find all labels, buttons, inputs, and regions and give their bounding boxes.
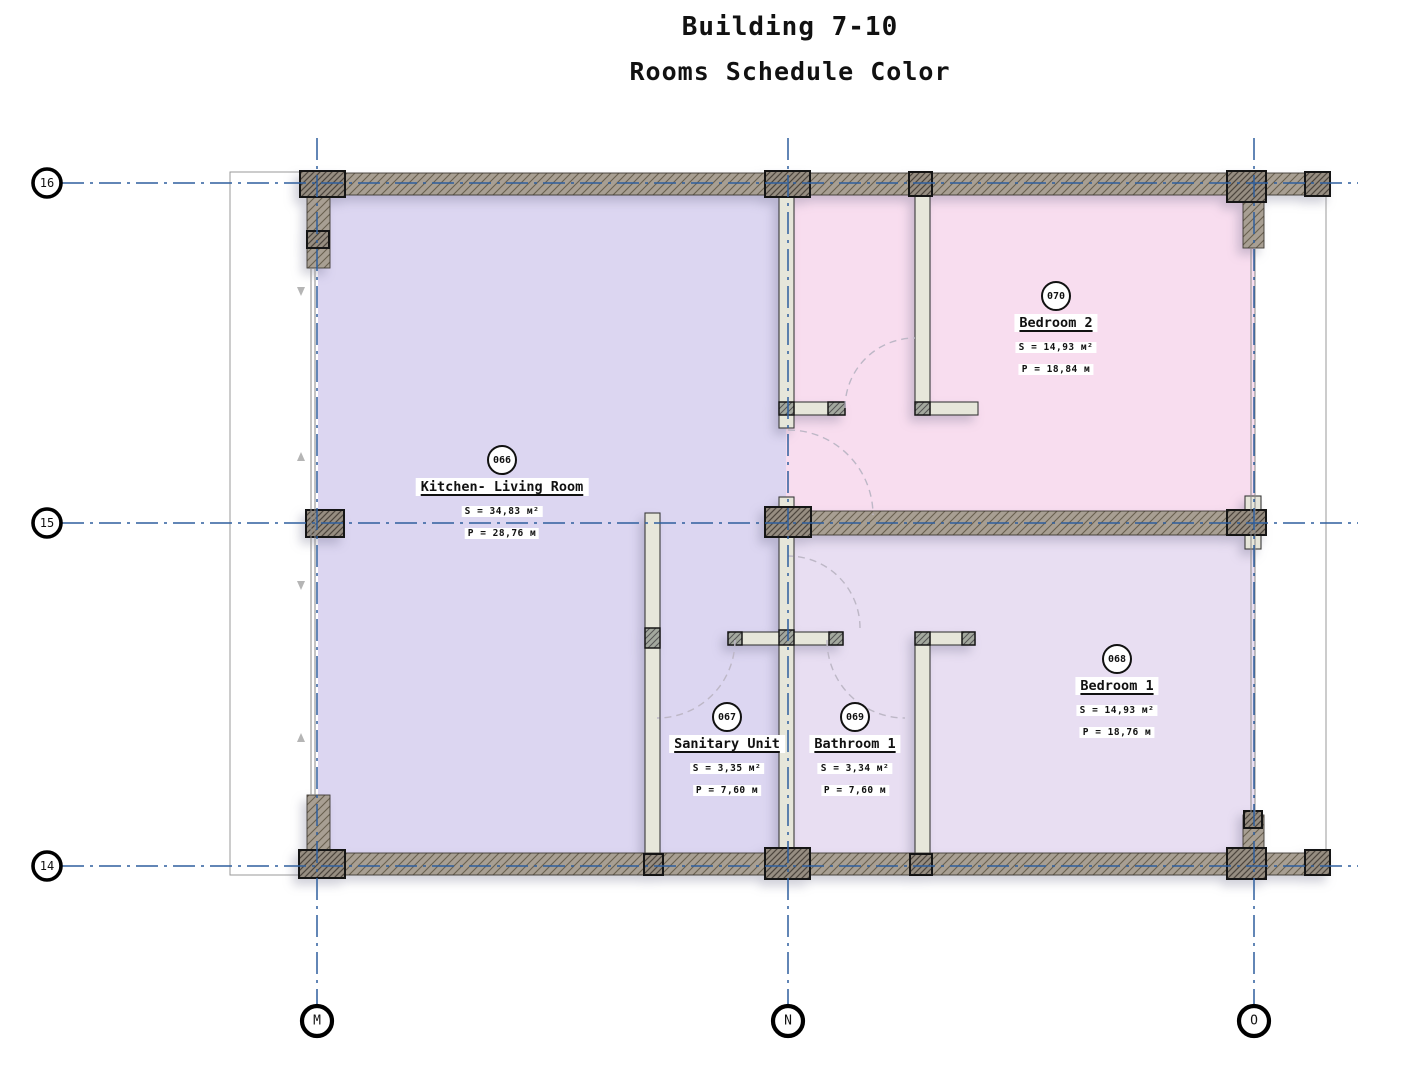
wall-bottom bbox=[307, 853, 1330, 875]
column bbox=[1244, 811, 1262, 828]
grid-bubble-M-label: M bbox=[313, 1014, 321, 1029]
column bbox=[300, 171, 345, 197]
partition-sanitary-bathroom bbox=[779, 535, 794, 855]
grid-bubble-16-label: 16 bbox=[40, 176, 54, 190]
grid-bubble-16: 16 bbox=[33, 169, 61, 197]
grid-bubble-14-label: 14 bbox=[40, 859, 54, 873]
window-arrow-up bbox=[297, 452, 305, 461]
room-tag-066: 066 bbox=[487, 445, 517, 475]
grid-bubble-14: 14 bbox=[33, 852, 61, 880]
room-name: Bathroom 1 bbox=[809, 735, 900, 753]
room-label-bedroom1: Bedroom 1 S = 14,93 м² P = 18,76 м bbox=[1075, 675, 1158, 739]
block bbox=[915, 402, 930, 415]
room-name: Kitchen- Living Room bbox=[416, 478, 589, 496]
block bbox=[915, 632, 930, 645]
block bbox=[829, 632, 843, 645]
floor-plan-canvas: 16 15 14 M N O bbox=[0, 0, 1426, 1073]
wall-left-lower bbox=[307, 795, 330, 853]
block bbox=[779, 630, 794, 645]
partition-kitchen-corridor bbox=[645, 513, 660, 855]
grid-bubble-O-label: O bbox=[1250, 1014, 1258, 1029]
column bbox=[299, 850, 345, 878]
room-perimeter: P = 18,84 м bbox=[1019, 364, 1093, 375]
window-arrows bbox=[297, 287, 305, 742]
room-label-kitchen-living: Kitchen- Living Room S = 34,83 м² P = 28… bbox=[416, 476, 589, 540]
room-area: S = 34,83 м² bbox=[462, 506, 543, 517]
room-perimeter: P = 7,60 м bbox=[821, 785, 889, 796]
block bbox=[645, 628, 660, 648]
partition-kitchen-bedroom2 bbox=[779, 196, 794, 428]
room-perimeter: P = 18,76 м bbox=[1080, 727, 1154, 738]
drawing-title: Building 7-10 bbox=[682, 12, 899, 42]
column bbox=[644, 854, 663, 875]
room-perimeter: P = 7,60 м bbox=[693, 785, 761, 796]
block bbox=[779, 402, 794, 415]
column bbox=[1305, 850, 1330, 875]
room-area: S = 14,93 м² bbox=[1016, 342, 1097, 353]
grid-bubble-O: O bbox=[1239, 1006, 1269, 1036]
room-label-bedroom2: Bedroom 2 S = 14,93 м² P = 18,84 м bbox=[1014, 312, 1097, 376]
partition-bedroom2-inner bbox=[915, 196, 930, 415]
room-tag-067: 067 bbox=[712, 702, 742, 732]
column bbox=[909, 172, 932, 196]
column bbox=[1305, 172, 1330, 196]
window-arrow-down bbox=[297, 287, 305, 296]
grid-bubble-N: N bbox=[773, 1006, 803, 1036]
partition-bedroom2-return bbox=[930, 402, 978, 415]
room-perimeter: P = 28,76 м bbox=[465, 528, 539, 539]
room-name: Bedroom 1 bbox=[1075, 677, 1158, 695]
room-name: Sanitary Unit bbox=[669, 735, 785, 753]
partition-stub-o-lower bbox=[1245, 534, 1261, 549]
drawing-subtitle: Rooms Schedule Color bbox=[629, 57, 950, 86]
room-area: S = 14,93 м² bbox=[1077, 705, 1158, 716]
floor-plan-page: 16 15 14 M N O Building 7-10 Rooms Sched… bbox=[0, 0, 1426, 1073]
window-arrow-down bbox=[297, 581, 305, 590]
column bbox=[307, 231, 329, 248]
grid-bubble-15: 15 bbox=[33, 509, 61, 537]
room-label-bathroom1: Bathroom 1 S = 3,34 м² P = 7,60 м bbox=[809, 733, 900, 797]
room-area: S = 3,34 м² bbox=[818, 763, 892, 774]
partition-bathroom-bedroom1 bbox=[915, 632, 930, 855]
wall-top bbox=[307, 173, 1330, 195]
column bbox=[1227, 171, 1266, 202]
column bbox=[910, 854, 932, 875]
room-tag-070: 070 bbox=[1041, 281, 1071, 311]
room-name: Bedroom 2 bbox=[1014, 314, 1097, 332]
grid-bubble-15-label: 15 bbox=[40, 516, 54, 530]
grid-bubble-M: M bbox=[302, 1006, 332, 1036]
room-label-sanitary-unit: Sanitary Unit S = 3,35 м² P = 7,60 м bbox=[669, 733, 785, 797]
block bbox=[828, 402, 845, 415]
column bbox=[1227, 848, 1266, 879]
grid-bubble-N-label: N bbox=[784, 1014, 792, 1029]
room-area: S = 3,35 м² bbox=[690, 763, 764, 774]
partition-stub-o-upper bbox=[1245, 496, 1261, 511]
window-arrow-up bbox=[297, 733, 305, 742]
room-fill-bedroom1 bbox=[786, 523, 1255, 855]
block bbox=[962, 632, 975, 645]
room-tag-069: 069 bbox=[840, 702, 870, 732]
room-tag-068: 068 bbox=[1102, 644, 1132, 674]
